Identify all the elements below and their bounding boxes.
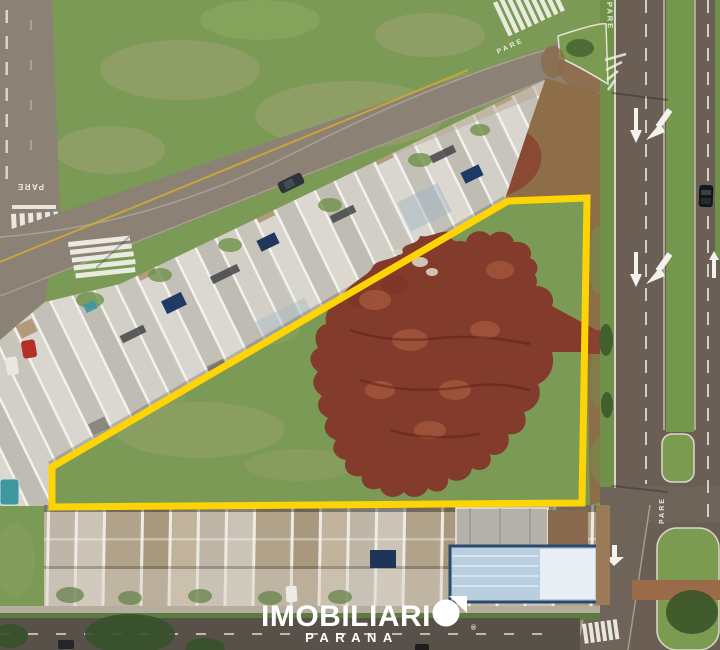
pare-marking: PARE (605, 2, 615, 31)
median-island (662, 434, 694, 482)
aerial-scene: PARE PARE (0, 0, 720, 650)
tree (599, 324, 613, 356)
warehouse-building (450, 508, 598, 602)
median (666, 0, 694, 432)
stop-bar (12, 205, 56, 209)
pool (0, 479, 19, 505)
pare-marking: PARE (659, 497, 666, 524)
brand-text: IMOBILIARI (261, 600, 431, 633)
brand-subtitle: PARANA (305, 630, 399, 645)
car (699, 185, 714, 207)
registered-mark: ® (471, 624, 477, 632)
tree (601, 392, 613, 418)
pare-marking: PARE (16, 182, 44, 191)
solar-panel (370, 550, 396, 568)
car (5, 356, 19, 375)
aerial-photo: PARE PARE (0, 0, 720, 650)
bottom-houses-row (44, 505, 610, 607)
dirt-side (596, 505, 610, 605)
